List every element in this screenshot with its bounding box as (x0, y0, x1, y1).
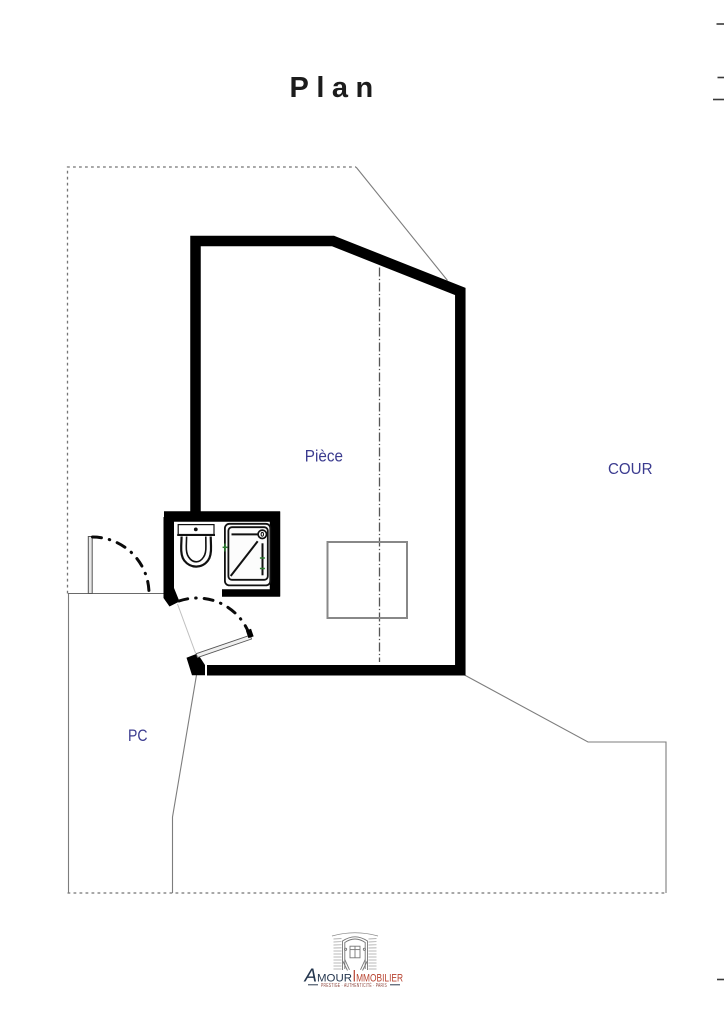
svg-text:COUR: COUR (608, 461, 653, 478)
svg-text:PC: PC (128, 727, 148, 745)
svg-text:Plan: Plan (290, 72, 381, 104)
svg-text:PRESTIGE · AUTHENTICITÉ · PARI: PRESTIGE · AUTHENTICITÉ · PARIS (321, 982, 387, 989)
svg-text:Pièce: Pièce (305, 447, 343, 466)
